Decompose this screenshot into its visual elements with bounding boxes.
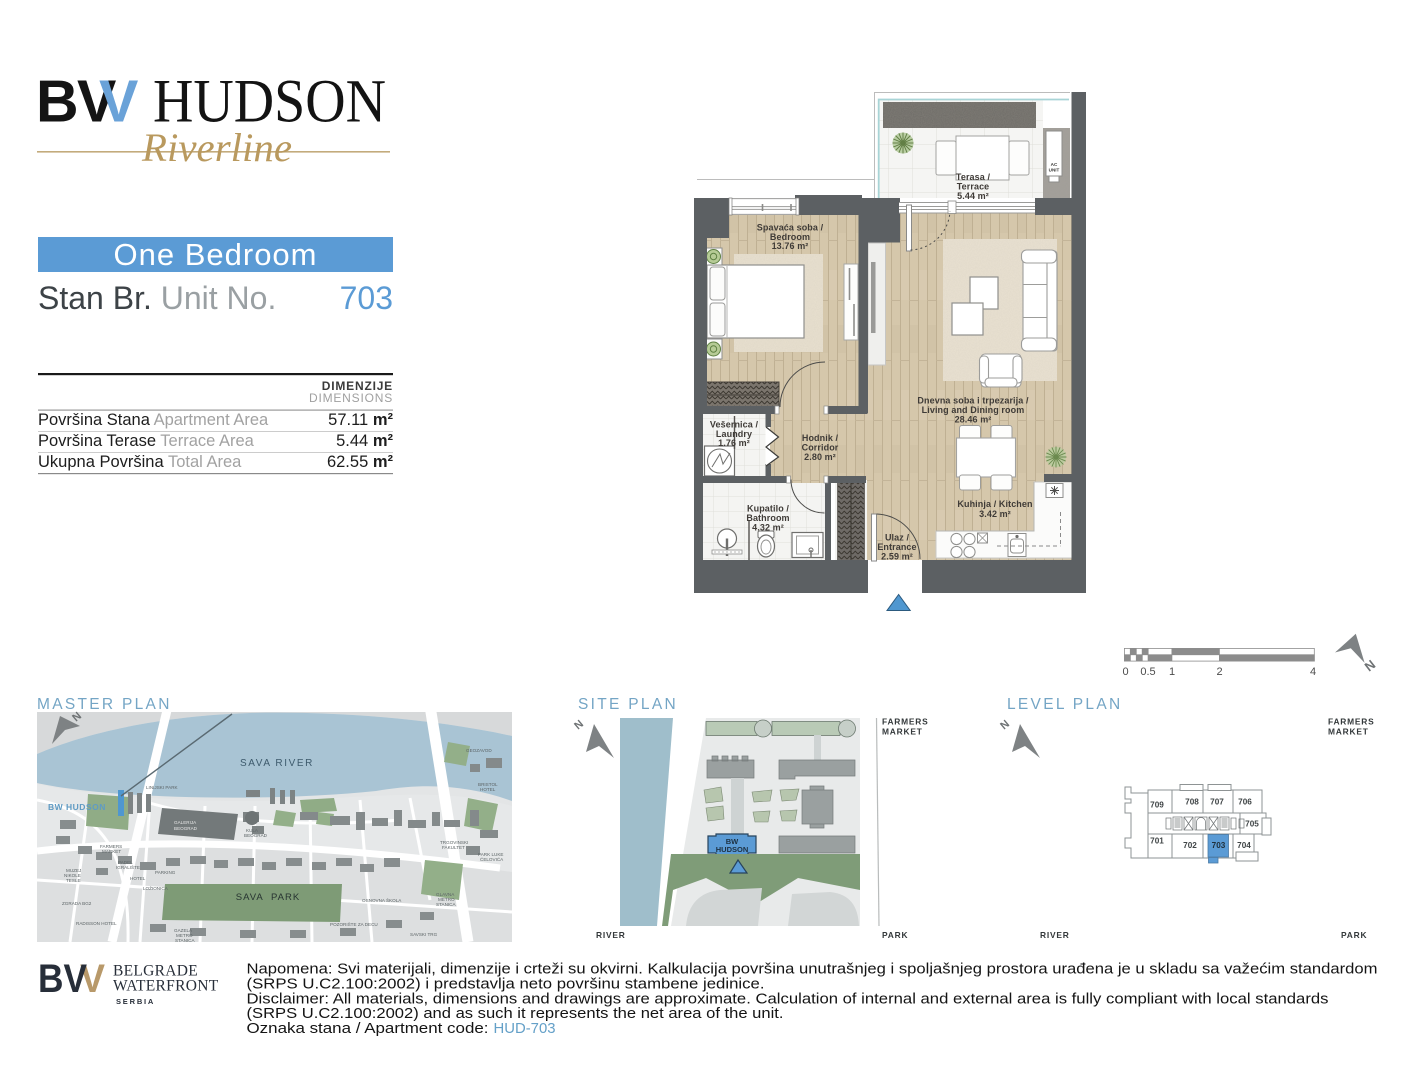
svg-text:Vešernica /: Vešernica / bbox=[710, 420, 759, 430]
svg-text:N: N bbox=[1362, 657, 1379, 675]
svg-text:FAKULTET: FAKULTET bbox=[442, 845, 465, 850]
svg-text:GALERIJA: GALERIJA bbox=[174, 820, 197, 825]
svg-text:RIVER: RIVER bbox=[1040, 930, 1070, 940]
svg-text:705: 705 bbox=[1245, 820, 1259, 829]
svg-text:Living and Dining room: Living and Dining room bbox=[922, 405, 1025, 415]
svg-text:707: 707 bbox=[1210, 798, 1224, 807]
svg-text:MARKET: MARKET bbox=[882, 727, 923, 737]
svg-text:Corridor: Corridor bbox=[802, 443, 839, 453]
svg-text:GEOZAVOD: GEOZAVOD bbox=[466, 748, 492, 753]
svg-text:SAVA PARK: SAVA PARK bbox=[236, 892, 300, 903]
svg-text:BEOGRAD: BEOGRAD bbox=[174, 826, 198, 831]
svg-text:BW HUDSON: BW HUDSON bbox=[48, 802, 106, 812]
svg-text:RIVER: RIVER bbox=[596, 930, 626, 940]
svg-text:0.5: 0.5 bbox=[1140, 666, 1155, 678]
svg-text:Dnevna soba i trpezarija /: Dnevna soba i trpezarija / bbox=[917, 396, 1029, 406]
svg-text:IGRALIŠTE: IGRALIŠTE bbox=[116, 864, 140, 870]
svg-text:STANICA: STANICA bbox=[175, 938, 196, 943]
svg-text:PARK: PARK bbox=[882, 930, 908, 940]
svg-text:ĆELOVIĆA: ĆELOVIĆA bbox=[480, 856, 504, 862]
svg-text:Hodnik /: Hodnik / bbox=[802, 433, 839, 443]
svg-text:OSNOVNA ŠKOLA: OSNOVNA ŠKOLA bbox=[362, 897, 402, 903]
svg-text:SITE PLAN: SITE PLAN bbox=[578, 696, 678, 713]
svg-text:5.44 m²: 5.44 m² bbox=[957, 191, 989, 201]
svg-text:2.59 m²: 2.59 m² bbox=[881, 552, 913, 562]
svg-text:701: 701 bbox=[1150, 837, 1164, 846]
svg-text:ZGRADA BG2: ZGRADA BG2 bbox=[62, 901, 92, 906]
svg-text:MARKET: MARKET bbox=[102, 849, 121, 854]
svg-text:MARKET: MARKET bbox=[1328, 727, 1369, 737]
svg-text:UNIT: UNIT bbox=[1049, 168, 1060, 173]
svg-text:HOTEL: HOTEL bbox=[130, 876, 146, 881]
svg-text:HOTEL: HOTEL bbox=[480, 787, 496, 792]
svg-text:3.42 m²: 3.42 m² bbox=[979, 509, 1011, 519]
svg-text:FARMERS: FARMERS bbox=[882, 717, 929, 727]
svg-text:SERBIA: SERBIA bbox=[116, 997, 155, 1006]
svg-text:1: 1 bbox=[1169, 666, 1175, 678]
svg-text:28.46 m²: 28.46 m² bbox=[955, 415, 992, 425]
svg-text:2: 2 bbox=[1216, 666, 1222, 678]
svg-text:AC: AC bbox=[1051, 162, 1058, 167]
svg-text:1.76 m²: 1.76 m² bbox=[718, 438, 750, 448]
svg-text:704: 704 bbox=[1237, 841, 1251, 850]
svg-text:702: 702 bbox=[1183, 841, 1197, 850]
svg-text:SAVA RIVER: SAVA RIVER bbox=[240, 758, 314, 769]
svg-text:Entrance: Entrance bbox=[877, 542, 916, 552]
svg-text:4.32 m²: 4.32 m² bbox=[752, 523, 784, 533]
svg-text:709: 709 bbox=[1150, 801, 1164, 810]
svg-text:LEVEL PLAN: LEVEL PLAN bbox=[1007, 696, 1122, 713]
svg-text:MASTER PLAN: MASTER PLAN bbox=[37, 696, 172, 713]
svg-text:706: 706 bbox=[1238, 798, 1252, 807]
svg-text:SAVSKI TRG: SAVSKI TRG bbox=[410, 932, 438, 937]
svg-text:703: 703 bbox=[1212, 841, 1226, 850]
svg-text:Spavaća soba /: Spavaća soba / bbox=[757, 223, 824, 233]
svg-text:FARMERS: FARMERS bbox=[1328, 717, 1375, 727]
svg-text:0: 0 bbox=[1122, 666, 1128, 678]
svg-text:HUDSON: HUDSON bbox=[716, 845, 749, 854]
svg-text:WATERFRONT: WATERFRONT bbox=[113, 978, 219, 995]
svg-text:Kupatilo /: Kupatilo / bbox=[747, 504, 789, 514]
svg-text:TESLE: TESLE bbox=[66, 878, 81, 883]
svg-text:LINIJSKI PARK: LINIJSKI PARK bbox=[146, 785, 179, 790]
svg-text:STANICA: STANICA bbox=[436, 902, 457, 907]
svg-text:Oznaka stana / Apartment code:: Oznaka stana / Apartment code: bbox=[247, 1020, 489, 1037]
svg-text:RADISSON HOTEL: RADISSON HOTEL bbox=[76, 921, 117, 926]
svg-text:Terrace: Terrace bbox=[957, 182, 990, 192]
svg-text:PARK: PARK bbox=[1341, 930, 1367, 940]
svg-text:2.80 m²: 2.80 m² bbox=[804, 452, 836, 462]
svg-text:BV: BV bbox=[38, 957, 87, 1001]
svg-text:N: N bbox=[998, 718, 1012, 732]
svg-text:Kuhinja / Kitchen: Kuhinja / Kitchen bbox=[957, 499, 1032, 509]
svg-text:LOŽIONICA: LOŽIONICA bbox=[143, 884, 169, 891]
svg-text:Terasa /: Terasa / bbox=[956, 172, 991, 182]
svg-text:13.76 m²: 13.76 m² bbox=[772, 241, 809, 251]
svg-text:708: 708 bbox=[1185, 798, 1199, 807]
svg-text:Ulaz /: Ulaz / bbox=[885, 533, 910, 543]
svg-text:HUD-703: HUD-703 bbox=[494, 1020, 556, 1037]
svg-text:POZORIŠTE ZA DECU: POZORIŠTE ZA DECU bbox=[330, 921, 378, 927]
svg-text:N: N bbox=[572, 718, 586, 732]
svg-text:Bathroom: Bathroom bbox=[746, 513, 789, 523]
svg-text:4: 4 bbox=[1310, 666, 1316, 678]
svg-text:PARKING: PARKING bbox=[155, 870, 176, 875]
svg-text:BEOGRAD: BEOGRAD bbox=[244, 833, 268, 838]
